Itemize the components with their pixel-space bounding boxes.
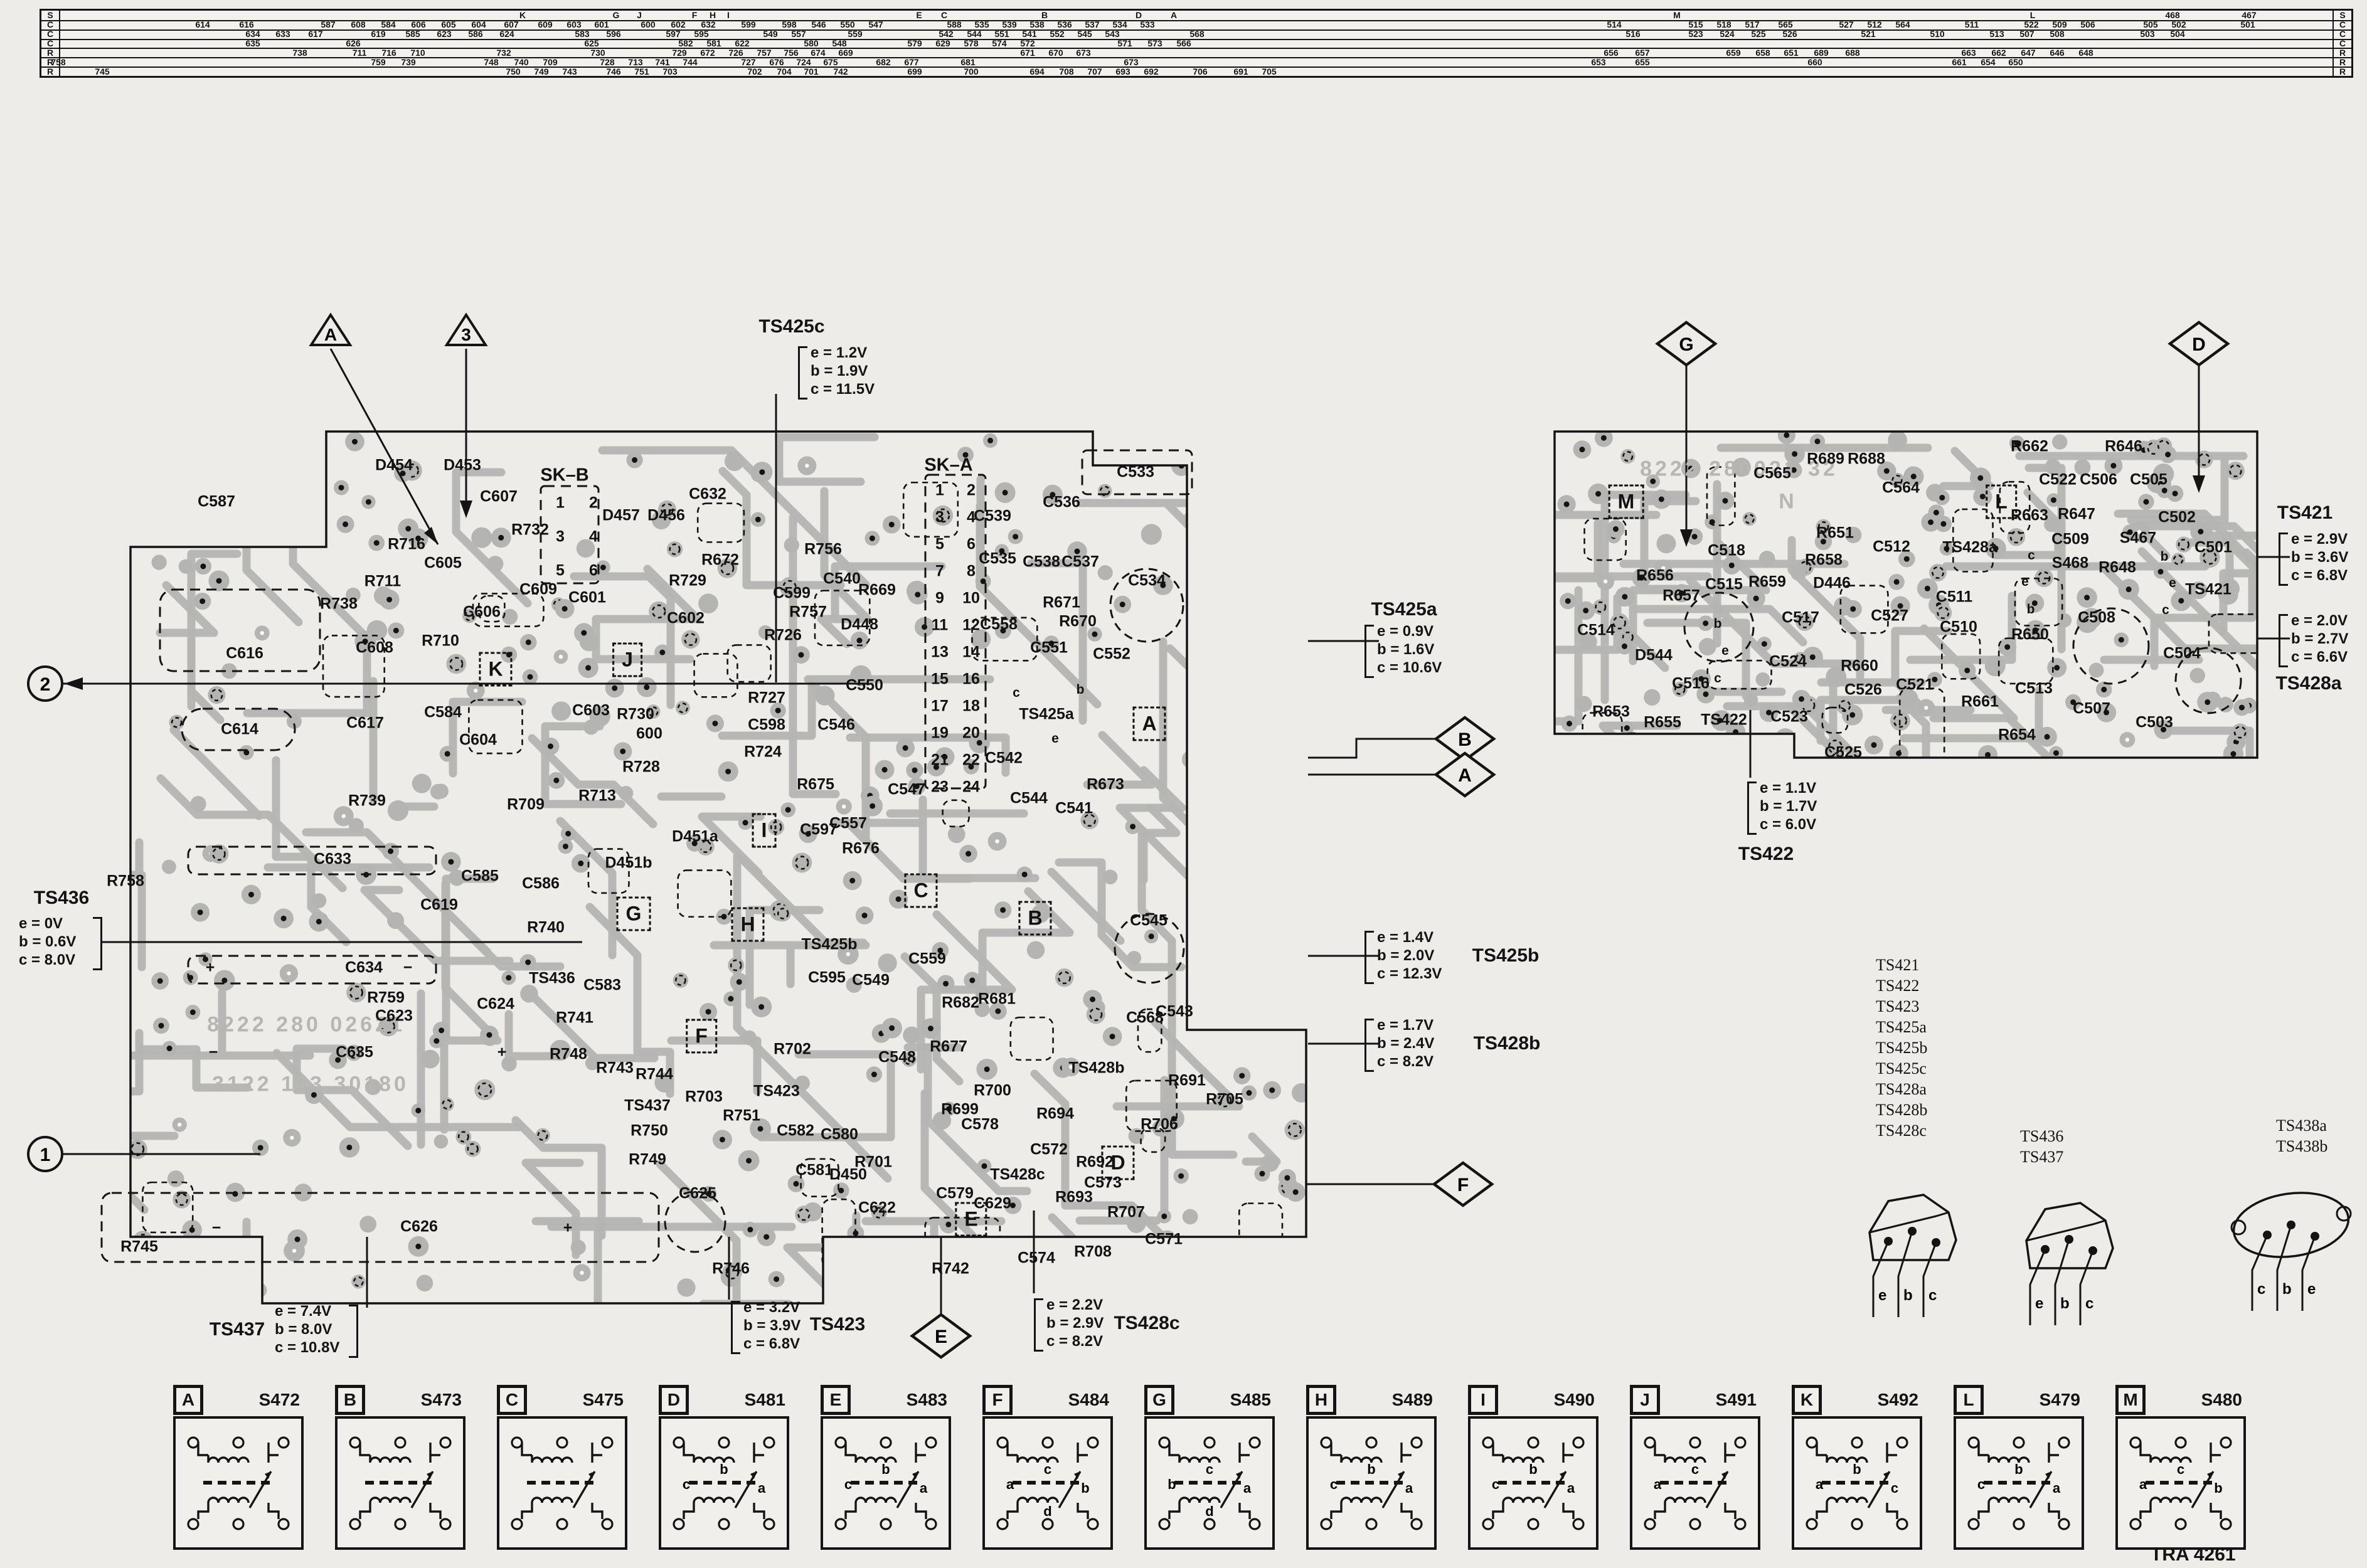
voltage-value: c = 6.6V (2291, 648, 2348, 666)
voltage-value: c = 8.0V (19, 951, 76, 969)
voltage-value: c = 6.0V (1760, 815, 1817, 834)
bracket (2279, 614, 2288, 667)
bracket (1364, 625, 1374, 678)
voltage-list: e = 7.4Vb = 8.0Vc = 10.8V (275, 1302, 339, 1357)
voltage-value: b = 2.7V (2291, 630, 2348, 648)
test-point-label: TS422 (1738, 844, 1794, 865)
voltage-value: e = 1.1V (1760, 779, 1817, 797)
voltage-list: e = 1.1Vb = 1.7Vc = 6.0V (1760, 779, 1817, 834)
voltage-value: c = 12.3V (1377, 965, 1442, 983)
svg-text:b: b (2060, 1295, 2070, 1312)
voltage-value: c = 6.8V (2291, 566, 2348, 585)
voltage-value: c = 11.5V (811, 380, 875, 398)
voltage-value: c = 6.8V (743, 1335, 801, 1353)
bracket (93, 917, 102, 970)
voltage-value: e = 0.9V (1377, 622, 1442, 640)
test-point-label: TS428a (2275, 673, 2341, 694)
voltage-value: e = 1.4V (1377, 928, 1442, 946)
transistor-pinout: ebc (1870, 1195, 1956, 1317)
voltage-list: e = 2.2Vb = 2.9Vc = 8.2V (1046, 1296, 1104, 1350)
voltage-value: b = 1.9V (811, 362, 875, 380)
bracket (1747, 781, 1757, 835)
voltage-list: e = 1.4Vb = 2.0Vc = 12.3V (1377, 928, 1442, 983)
voltage-list: e = 0Vb = 0.6Vc = 8.0V (19, 914, 76, 969)
voltage-value: b = 2.9V (1046, 1314, 1104, 1332)
svg-text:e: e (1878, 1287, 1886, 1304)
voltage-value: b = 3.9V (743, 1316, 801, 1335)
voltage-value: c = 10.8V (275, 1338, 339, 1357)
voltage-list: e = 2.9Vb = 3.6Vc = 6.8V (2291, 530, 2348, 585)
voltage-value: e = 1.2V (811, 344, 875, 362)
test-point-label: TS425b (1472, 945, 1540, 967)
voltage-value: e = 2.0V (2291, 612, 2348, 630)
voltage-value: e = 2.9V (2291, 530, 2348, 548)
svg-text:b: b (2282, 1281, 2292, 1298)
bracket (731, 1301, 740, 1354)
svg-text:c: c (2085, 1295, 2093, 1312)
bracket (798, 346, 807, 400)
bracket (349, 1305, 358, 1358)
test-point-label: TS437 (210, 1319, 265, 1340)
service-manual-sheet: SSKGJFHIECBDAML468467CC61461658760858460… (0, 0, 2367, 1568)
voltage-list: e = 1.2Vb = 1.9Vc = 11.5V (811, 344, 875, 398)
voltage-value: e = 0V (19, 914, 76, 933)
transistor-pinout: ebc (2026, 1203, 2113, 1325)
voltage-value: b = 2.4V (1377, 1034, 1434, 1052)
svg-text:e: e (2035, 1295, 2043, 1312)
voltage-value: b = 2.0V (1377, 946, 1442, 965)
voltage-value: e = 7.4V (275, 1302, 339, 1320)
test-point-label: TS436 (34, 887, 89, 909)
voltage-list: e = 1.7Vb = 2.4Vc = 8.2V (1377, 1016, 1434, 1071)
bracket (2279, 532, 2288, 586)
voltage-list: e = 3.2Vb = 3.9Vc = 6.8V (743, 1298, 801, 1353)
svg-text:c: c (2257, 1281, 2265, 1298)
drawing-number: TRA 4261 (2151, 1544, 2236, 1565)
bracket (1034, 1298, 1043, 1352)
voltage-value: e = 2.2V (1046, 1296, 1104, 1314)
voltage-list: e = 0.9Vb = 1.6Vc = 10.6V (1377, 622, 1442, 677)
voltage-value: c = 8.2V (1377, 1052, 1434, 1071)
test-point-label: TS423 (810, 1314, 865, 1335)
bracket (1364, 931, 1374, 984)
test-point-label: TS428b (1474, 1033, 1541, 1054)
test-point-label: TS425c (758, 316, 824, 337)
voltage-value: c = 8.2V (1046, 1332, 1104, 1350)
svg-text:e: e (2307, 1281, 2316, 1298)
voltage-value: c = 10.6V (1377, 659, 1442, 677)
test-point-label: TS428c (1114, 1313, 1179, 1334)
voltage-value: b = 3.6V (2291, 548, 2348, 566)
voltage-value: b = 1.6V (1377, 640, 1442, 659)
test-point-label: TS425a (1371, 599, 1437, 620)
transistor-pinout: cbe (2230, 1186, 2353, 1311)
voltage-list: e = 2.0Vb = 2.7Vc = 6.6V (2291, 612, 2348, 666)
voltage-value: b = 0.6V (19, 933, 76, 951)
voltage-value: e = 1.7V (1377, 1016, 1434, 1034)
test-point-label: TS421 (2277, 502, 2332, 524)
voltage-value: b = 8.0V (275, 1320, 339, 1338)
bracket (1364, 1019, 1374, 1072)
svg-text:b: b (1903, 1287, 1913, 1304)
voltage-value: e = 3.2V (743, 1298, 801, 1316)
svg-text:c: c (1928, 1287, 1937, 1304)
voltage-value: b = 1.7V (1760, 797, 1817, 815)
